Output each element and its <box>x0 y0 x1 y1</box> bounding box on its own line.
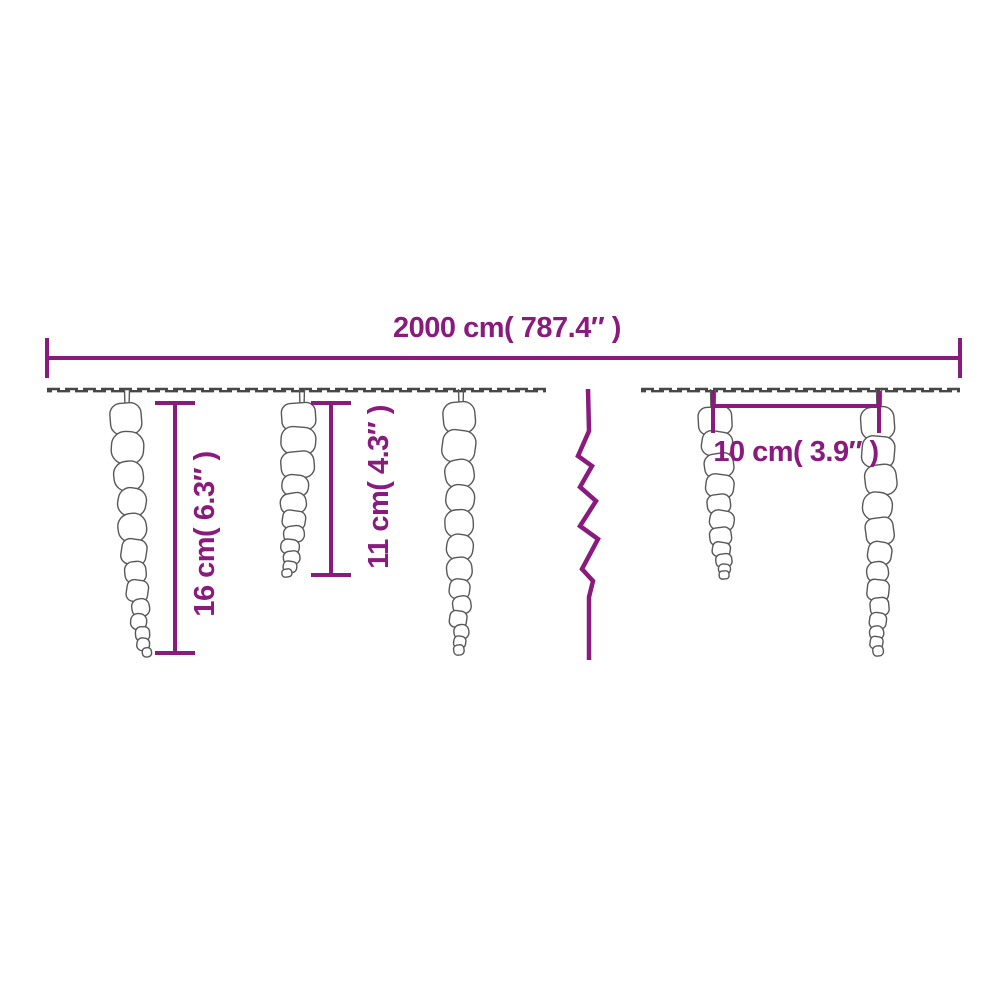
dimension-spacing: 10 cm( 3.9″ ) <box>713 391 879 468</box>
dimension-height-small: 11 cm( 4.3″ ) <box>311 403 395 575</box>
icicle-ornament-1 <box>109 389 152 657</box>
icicle-ornament-3 <box>440 389 477 656</box>
wire-group <box>47 389 960 391</box>
icicle-ornament-2 <box>279 389 317 578</box>
break-line <box>578 389 598 660</box>
icicle-ornament-4 <box>698 389 736 579</box>
product-dimension-diagram: 2000 cm( 787.4″ ) 16 cm( 6.3″ ) 11 cm( 4… <box>0 0 1000 1000</box>
icicle-blob <box>110 431 144 466</box>
dimension-height-large-label: 16 cm( 6.3″ ) <box>189 451 221 616</box>
icicle-blob <box>109 402 143 436</box>
icicles-group <box>109 389 898 657</box>
diagram-svg: 2000 cm( 787.4″ ) 16 cm( 6.3″ ) 11 cm( 4… <box>0 0 1000 1000</box>
dimension-height-large: 16 cm( 6.3″ ) <box>155 403 221 653</box>
dimension-total-width: 2000 cm( 787.4″ ) <box>47 312 960 378</box>
icicle-blob <box>142 647 152 657</box>
dimension-spacing-label: 10 cm( 3.9″ ) <box>713 436 878 468</box>
icicle-blob <box>281 568 292 577</box>
dimension-height-small-lines <box>311 403 351 575</box>
icicle-blob <box>453 644 465 655</box>
break-line-group <box>578 389 598 660</box>
icicle-blob <box>872 645 884 656</box>
dimension-height-small-label: 11 cm( 4.3″ ) <box>363 405 395 569</box>
dimension-total-width-label: 2000 cm( 787.4″ ) <box>393 312 621 344</box>
icicle-blob <box>719 571 729 580</box>
dimension-total-width-lines <box>47 338 960 378</box>
dimension-spacing-lines <box>713 391 879 433</box>
